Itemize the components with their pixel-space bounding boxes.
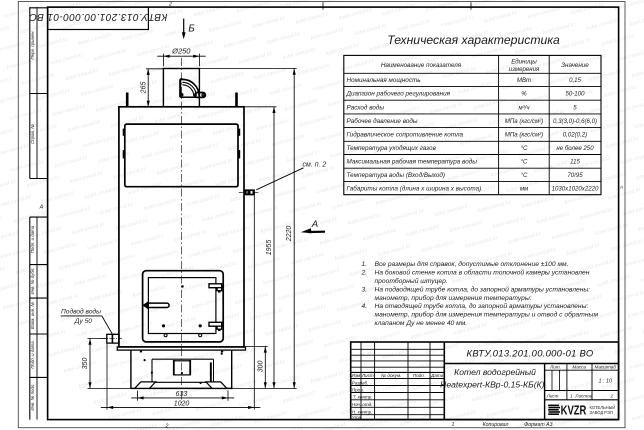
- svg-text:мм: мм: [520, 185, 529, 192]
- svg-text:МПа (кгс/см²): МПа (кгс/см²): [505, 118, 543, 125]
- svg-text:№ докум.: № докум.: [381, 373, 401, 378]
- svg-text:Листов: Листов: [574, 393, 592, 398]
- svg-text:Все размеры для справок, допус: Все размеры для справок, допустимые откл…: [375, 260, 569, 268]
- svg-text:2: 2: [168, 2, 172, 8]
- svg-text:Рабочее давление воды: Рабочее давление воды: [347, 117, 418, 125]
- svg-text:КВТУ.013.201.00.000-01 ВО: КВТУ.013.201.00.000-01 ВО: [29, 11, 168, 22]
- svg-text:МПа (кгс/см²): МПа (кгс/см²): [505, 132, 543, 139]
- svg-text:см. п. 2: см. п. 2: [303, 161, 327, 168]
- svg-text:Масштаб: Масштаб: [594, 364, 616, 369]
- svg-text:Утв.: Утв.: [352, 415, 362, 420]
- svg-text:KVZR: KVZR: [561, 402, 587, 417]
- svg-text:Нач. отд.: Нач. отд.: [352, 402, 373, 407]
- svg-text:°С: °С: [521, 172, 528, 179]
- svg-text:А: А: [39, 205, 44, 211]
- svg-text:300: 300: [257, 361, 264, 373]
- svg-text:Т. контр.: Т. контр.: [353, 395, 373, 400]
- svg-text:50-100: 50-100: [566, 91, 586, 98]
- svg-text:Температура воды (Вход/Выход): Температура воды (Вход/Выход): [347, 171, 446, 179]
- svg-text:Справ. №: Справ. №: [30, 124, 35, 144]
- svg-text:Инв. № дубл.: Инв. № дубл.: [30, 267, 35, 294]
- svg-text:Разраб.: Разраб.: [352, 380, 369, 385]
- svg-text:Инв. № подл.: Инв. № подл.: [30, 383, 35, 410]
- svg-text:манометр, прибор для измерения: манометр, прибор для измерения температу…: [375, 294, 532, 302]
- svg-text:Формат А3: Формат А3: [524, 422, 552, 428]
- svg-text:Подп. и дата: Подп. и дата: [30, 341, 35, 369]
- svg-text:Подвод воды: Подвод воды: [61, 308, 101, 316]
- svg-text:0,3(3,0)-0,6(6,0): 0,3(3,0)-0,6(6,0): [553, 118, 597, 125]
- svg-text:Техническая характеристика: Техническая характеристика: [387, 33, 560, 47]
- svg-text:На боковой стенке котла в обла: На боковой стенке котла в области топочн…: [375, 269, 590, 277]
- svg-text:Лист: Лист: [546, 393, 559, 398]
- svg-text:На отводящей трубе котла, до з: На отводящей трубе котла, до запорной ар…: [375, 302, 589, 310]
- svg-text:Heatexpert-КВр-0,15-КБ(К): Heatexpert-КВр-0,15-КБ(К): [440, 379, 545, 389]
- svg-text:0,15: 0,15: [569, 77, 581, 84]
- svg-text:м³/ч: м³/ч: [518, 104, 530, 111]
- svg-text:0,02(0,2): 0,02(0,2): [563, 132, 587, 139]
- svg-text:350: 350: [82, 358, 89, 370]
- svg-text:115: 115: [570, 159, 580, 166]
- svg-text:°С: °С: [521, 159, 528, 166]
- svg-text:Пров.: Пров.: [352, 387, 364, 392]
- svg-text:измерения: измерения: [509, 66, 540, 73]
- svg-text:Взам. инв. №: Взам. инв. №: [30, 302, 35, 329]
- svg-text:Единицы: Единицы: [511, 59, 537, 66]
- svg-text:Максимальная рабочая температу: Максимальная рабочая температура воды: [347, 158, 478, 166]
- svg-text:70/95: 70/95: [567, 172, 583, 179]
- svg-text:°С: °С: [521, 145, 528, 152]
- svg-text:Гидравлическое сопротивление к: Гидравлическое сопротивление котла: [347, 131, 464, 139]
- svg-text:1020: 1020: [174, 401, 190, 408]
- svg-text:Наименование показателя: Наименование показателя: [381, 62, 462, 69]
- svg-text:2: 2: [165, 424, 169, 430]
- svg-text:Подп.: Подп.: [413, 373, 425, 378]
- svg-text:Расход воды: Расход воды: [347, 103, 385, 111]
- svg-text:633: 633: [176, 391, 188, 398]
- svg-text:2220: 2220: [286, 226, 293, 243]
- svg-text:1 : 10: 1 : 10: [599, 378, 613, 384]
- svg-text:%: %: [521, 91, 527, 98]
- svg-text:2.: 2.: [361, 270, 368, 277]
- svg-text:КВТУ.013.201.00.000-01 ВО: КВТУ.013.201.00.000-01 ВО: [467, 348, 594, 359]
- svg-text:Масса: Масса: [573, 364, 587, 369]
- svg-text:Б: Б: [188, 24, 195, 35]
- svg-text:1030х1020х2220: 1030х1020х2220: [552, 185, 599, 192]
- svg-text:3.: 3.: [362, 286, 368, 293]
- svg-text:1: 1: [452, 422, 455, 428]
- svg-text:Котел водогрейный: Котел водогрейный: [454, 367, 536, 377]
- svg-text:Изм: Изм: [352, 373, 361, 378]
- svg-text:На подводящей трубе котла, до: На подводящей трубе котла, до запорной а…: [375, 285, 591, 293]
- svg-text:Копировал: Копировал: [483, 422, 509, 428]
- svg-text:Перв. примен.: Перв. примен.: [30, 30, 35, 59]
- svg-text:2: 2: [610, 393, 614, 398]
- svg-text:МВт: МВт: [517, 77, 531, 84]
- svg-text:1.: 1.: [362, 261, 368, 268]
- svg-text:А: А: [619, 185, 623, 190]
- svg-text:ЗАВОД РЭП: ЗАВОД РЭП: [590, 410, 613, 415]
- svg-text:Лит.: Лит.: [549, 364, 561, 369]
- svg-text:А: А: [311, 219, 318, 230]
- svg-text:Диапазон рабочего регулировани: Диапазон рабочего регулирования: [346, 90, 451, 98]
- svg-text:Лист: Лист: [361, 373, 374, 378]
- svg-text:1955: 1955: [266, 240, 273, 256]
- svg-text:1: 1: [570, 393, 573, 398]
- svg-text:проотборный штуцер.: проотборный штуцер.: [375, 277, 448, 285]
- svg-text:4.: 4.: [362, 303, 368, 310]
- svg-text:Температура уходящих газов: Температура уходящих газов: [347, 144, 437, 152]
- svg-text:не более 250: не более 250: [556, 145, 594, 152]
- svg-text:Габариты котла (длина х ширина: Габариты котла (длина х ширина х высота): [347, 184, 482, 192]
- svg-text:манометр, прибор для измерения: манометр, прибор для измерения температу…: [375, 311, 599, 319]
- svg-text:клапаном Ду не менее 40 мм.: клапаном Ду не менее 40 мм.: [375, 320, 468, 327]
- svg-text:Ду 50: Ду 50: [74, 318, 93, 325]
- svg-text:Значение: Значение: [561, 62, 589, 69]
- svg-text:Ø250: Ø250: [171, 46, 191, 55]
- svg-text:Подп. и дата: Подп. и дата: [30, 225, 35, 253]
- svg-text:Номинальная мощность: Номинальная мощность: [347, 77, 421, 84]
- svg-text:Н. контр.: Н. контр.: [352, 409, 373, 414]
- svg-text:Дата: Дата: [430, 373, 444, 378]
- svg-text:265: 265: [140, 82, 147, 95]
